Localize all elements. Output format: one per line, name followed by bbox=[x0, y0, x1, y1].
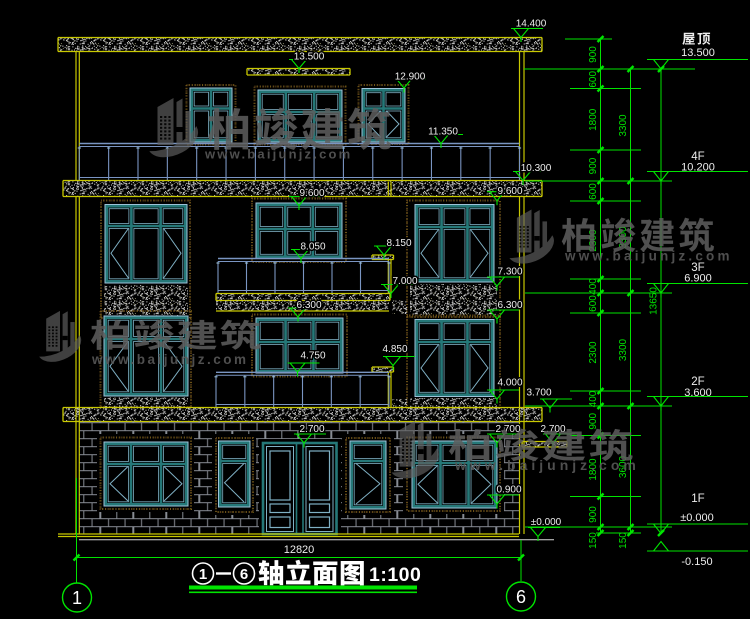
svg-text:6: 6 bbox=[516, 587, 526, 607]
svg-text:13.500: 13.500 bbox=[681, 47, 715, 59]
svg-text:1F: 1F bbox=[691, 493, 704, 505]
svg-text:±0.000: ±0.000 bbox=[531, 517, 562, 528]
svg-text:7.000: 7.000 bbox=[392, 276, 417, 287]
svg-text:13.500: 13.500 bbox=[294, 52, 325, 63]
svg-text:9.600: 9.600 bbox=[299, 188, 324, 199]
svg-text:0.900: 0.900 bbox=[496, 485, 521, 496]
svg-text:3.600: 3.600 bbox=[684, 387, 712, 399]
svg-text:2300: 2300 bbox=[588, 341, 599, 364]
svg-text:1800: 1800 bbox=[588, 108, 599, 131]
svg-text:11.350: 11.350 bbox=[428, 127, 458, 138]
svg-text:1:100: 1:100 bbox=[369, 564, 421, 586]
svg-text:6.300: 6.300 bbox=[497, 300, 522, 311]
svg-text:12.900: 12.900 bbox=[395, 72, 426, 83]
svg-text:900: 900 bbox=[588, 157, 599, 174]
svg-text:900: 900 bbox=[588, 506, 599, 523]
svg-text:1: 1 bbox=[72, 588, 82, 608]
svg-text:3300: 3300 bbox=[618, 338, 629, 361]
svg-text:3.700: 3.700 bbox=[526, 388, 551, 399]
svg-text:www.baijunjz.com: www.baijunjz.com bbox=[204, 147, 352, 162]
svg-text:900: 900 bbox=[588, 46, 599, 63]
svg-text:-0.150: -0.150 bbox=[681, 556, 712, 568]
svg-text:400: 400 bbox=[588, 390, 599, 407]
svg-text:6: 6 bbox=[240, 566, 248, 583]
svg-text:13650: 13650 bbox=[649, 287, 660, 315]
svg-text:600: 600 bbox=[588, 295, 599, 312]
svg-text:2.700: 2.700 bbox=[299, 424, 324, 435]
svg-text:9.600: 9.600 bbox=[497, 186, 522, 197]
svg-text:1: 1 bbox=[199, 566, 207, 583]
svg-text:4.000: 4.000 bbox=[497, 378, 522, 389]
svg-text:600: 600 bbox=[588, 183, 599, 200]
svg-text:150: 150 bbox=[588, 532, 599, 549]
svg-text:±0.000: ±0.000 bbox=[680, 512, 714, 524]
svg-text:4.750: 4.750 bbox=[300, 351, 325, 362]
svg-text:12820: 12820 bbox=[284, 544, 315, 556]
svg-text:900: 900 bbox=[588, 413, 599, 430]
svg-text:8.050: 8.050 bbox=[300, 242, 325, 253]
svg-text:www.baijunjz.com: www.baijunjz.com bbox=[454, 457, 640, 473]
svg-text:www.baijunjz.com: www.baijunjz.com bbox=[564, 249, 733, 264]
svg-text:3300: 3300 bbox=[618, 114, 629, 137]
svg-text:400: 400 bbox=[588, 278, 599, 295]
svg-text:10.300: 10.300 bbox=[521, 163, 552, 174]
svg-text:7.300: 7.300 bbox=[497, 267, 522, 278]
svg-text:6.300: 6.300 bbox=[296, 300, 321, 311]
svg-text:www.baijunjz.com: www.baijunjz.com bbox=[91, 352, 249, 367]
svg-text:4.850: 4.850 bbox=[382, 344, 407, 355]
svg-text:150: 150 bbox=[618, 532, 629, 549]
svg-text:6.900: 6.900 bbox=[684, 273, 712, 285]
svg-text:8.150: 8.150 bbox=[386, 238, 411, 249]
svg-text:600: 600 bbox=[588, 71, 599, 88]
svg-text:14.400: 14.400 bbox=[516, 19, 547, 30]
